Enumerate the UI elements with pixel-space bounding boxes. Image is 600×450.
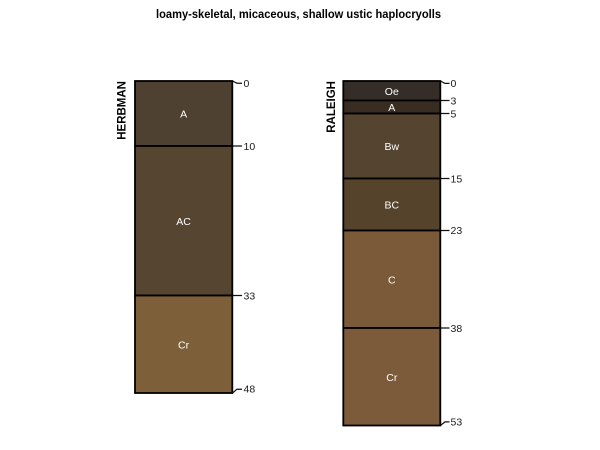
svg-text:0: 0 [244,78,250,90]
svg-text:loamy-skeletal, micaceous, sha: loamy-skeletal, micaceous, shallow ustic… [156,7,441,21]
svg-text:C: C [388,274,396,286]
svg-text:A: A [180,109,187,121]
svg-text:Oe: Oe [385,86,399,98]
svg-text:Cr: Cr [386,372,398,384]
svg-text:33: 33 [244,290,256,302]
svg-text:Bw: Bw [385,141,400,153]
svg-text:HERBMAN: HERBMAN [116,81,128,140]
svg-text:Cr: Cr [178,339,190,351]
svg-text:38: 38 [451,323,463,335]
svg-text:BC: BC [385,200,400,212]
svg-text:0: 0 [451,78,457,90]
svg-text:RALEIGH: RALEIGH [326,81,338,133]
svg-text:A: A [388,102,395,114]
svg-text:15: 15 [451,173,463,185]
svg-text:5: 5 [451,108,457,120]
svg-text:AC: AC [176,216,191,228]
svg-text:53: 53 [451,417,463,429]
svg-text:3: 3 [451,95,457,107]
svg-text:23: 23 [451,225,463,237]
svg-text:10: 10 [244,141,256,153]
svg-text:48: 48 [244,384,256,396]
